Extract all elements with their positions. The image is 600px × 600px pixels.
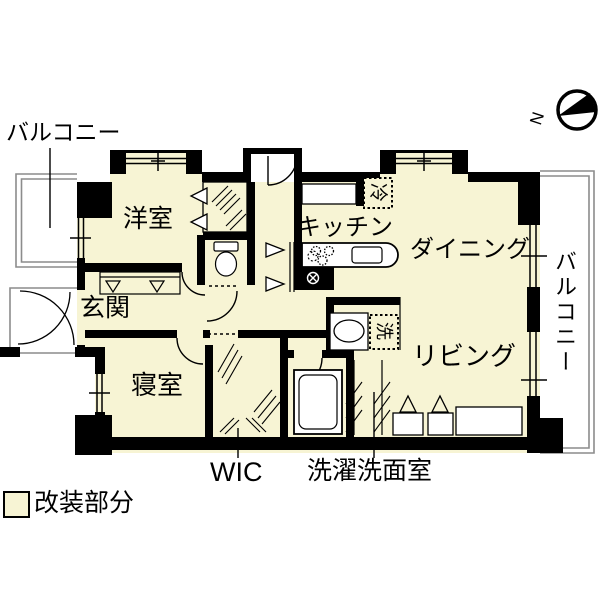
kitchen-label: キッチン bbox=[297, 216, 393, 240]
compass bbox=[558, 91, 596, 129]
legend-swatch bbox=[4, 492, 29, 517]
floor-plan: バルコニー N 洋室 キッチン ダイニング 冷 玄関 寝室 リビング 洗 バルコ… bbox=[0, 0, 600, 600]
balcony-left bbox=[16, 174, 77, 267]
entrance-porch bbox=[10, 288, 77, 353]
entrance-label: 玄関 bbox=[80, 296, 130, 321]
balcony-right-label: バルコニー bbox=[553, 250, 575, 375]
laundry-washroom-label: 洗濯洗面室 bbox=[307, 459, 432, 484]
refrigerator-label: 冷 bbox=[368, 183, 387, 202]
balcony-top-label: バルコニー bbox=[6, 121, 121, 144]
toilet bbox=[214, 242, 238, 276]
dining-label: ダイニング bbox=[410, 238, 530, 262]
bathtub bbox=[294, 370, 342, 434]
wash-basin bbox=[330, 313, 368, 350]
wall-column-bottomright bbox=[527, 418, 563, 453]
wall-corner-topright bbox=[518, 172, 540, 225]
western-room-label: 洋室 bbox=[123, 207, 173, 232]
wall-bottom bbox=[100, 437, 527, 450]
living-label: リビング bbox=[412, 343, 516, 369]
bedroom-label: 寝室 bbox=[131, 372, 183, 398]
wall-corner-topleft bbox=[77, 182, 112, 218]
kitchen-cabinet bbox=[302, 184, 356, 204]
kitchen-sink bbox=[352, 247, 382, 263]
wic-label: WIC bbox=[210, 459, 262, 486]
washing-machine-label: 洗 bbox=[375, 322, 393, 340]
legend-label: 改装部分 bbox=[34, 491, 134, 516]
